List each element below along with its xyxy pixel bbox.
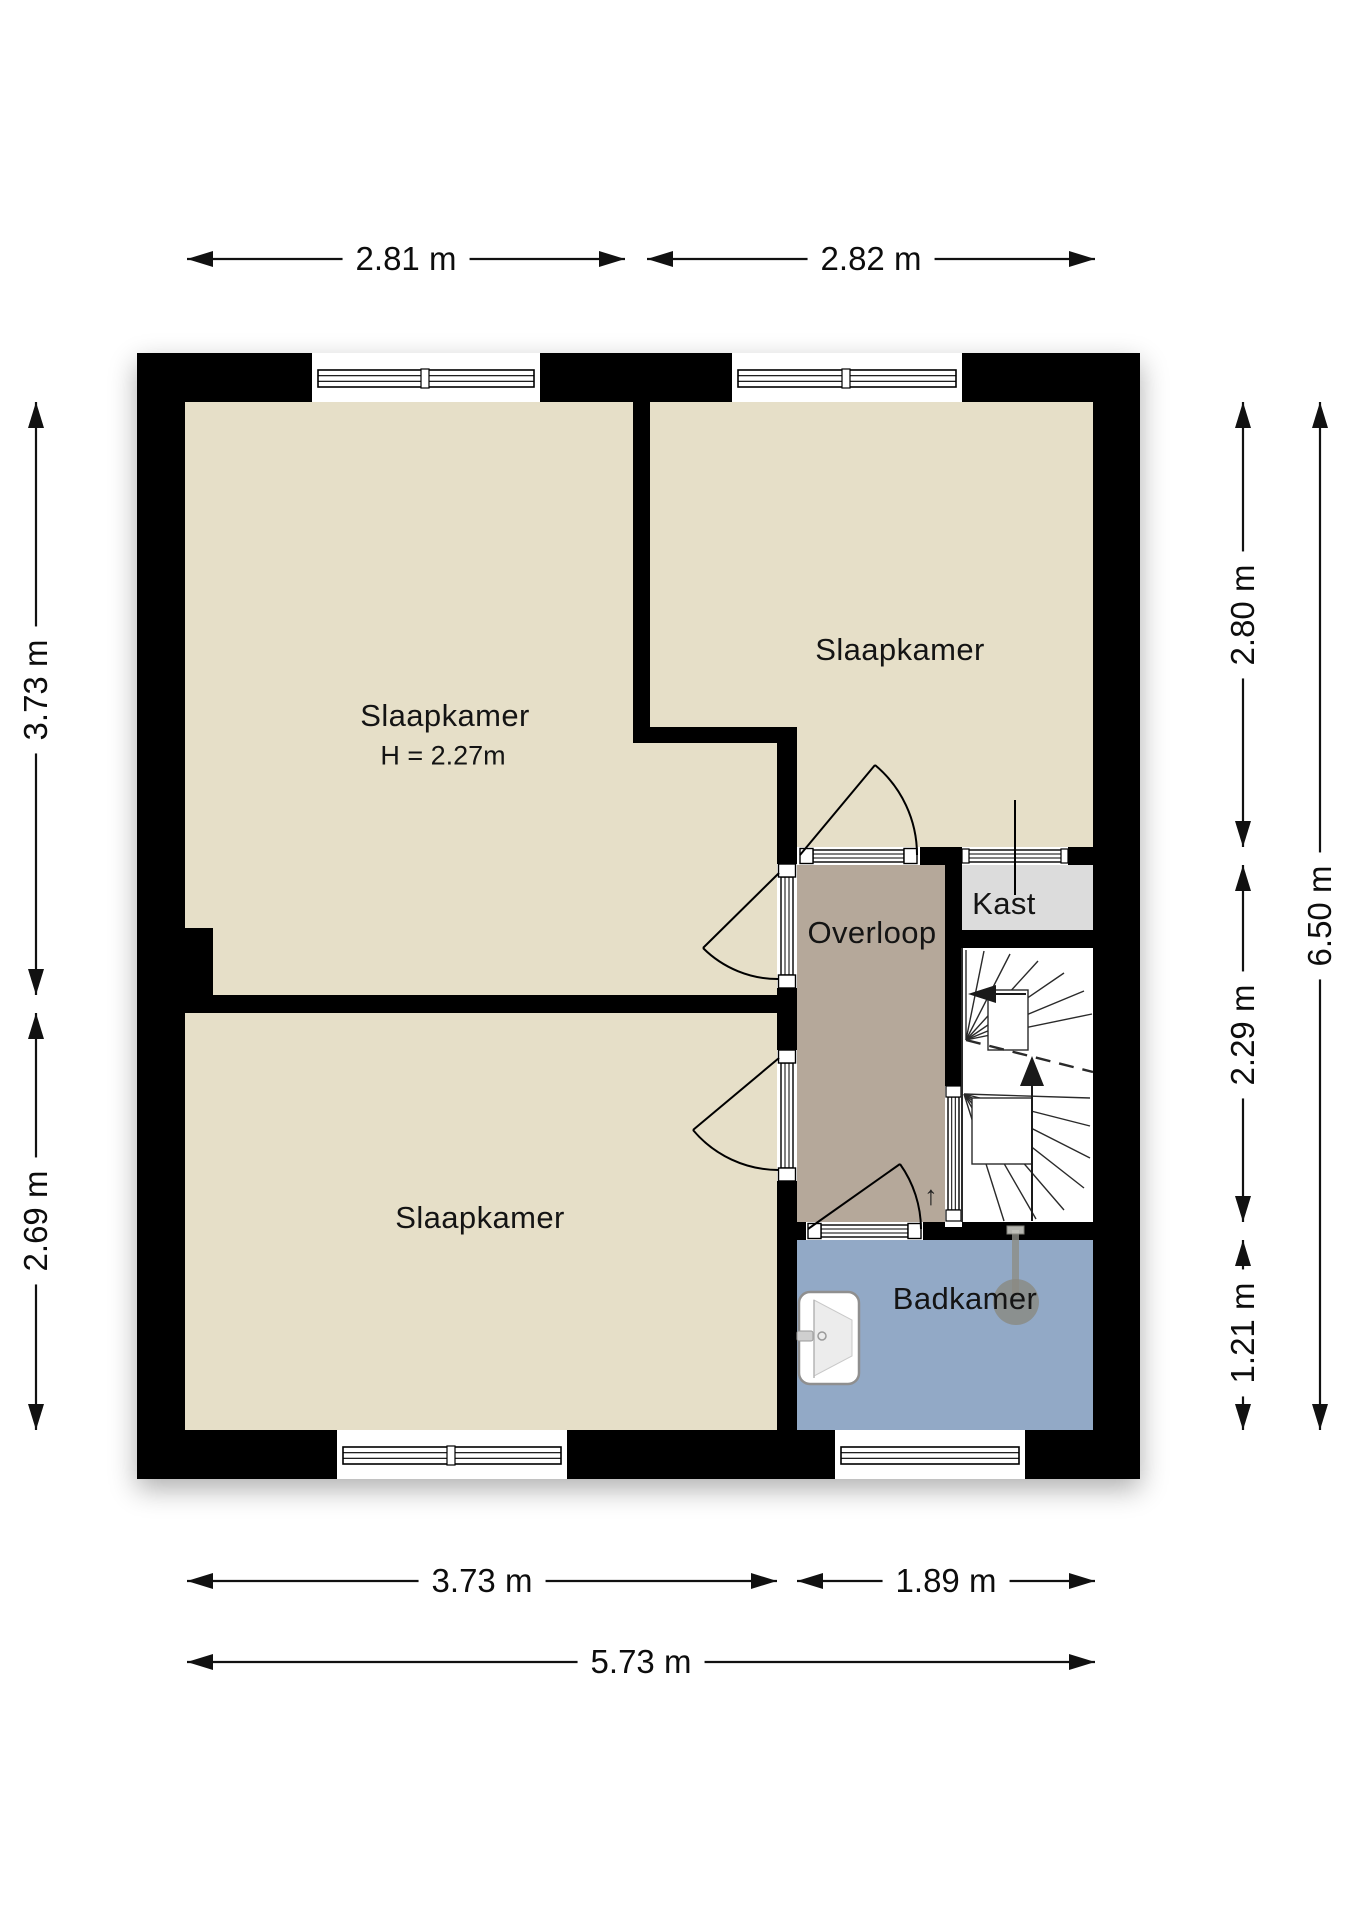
room-label-bedroom-top-left: Slaapkamer bbox=[360, 698, 529, 734]
exterior-wall-right bbox=[1093, 402, 1140, 1430]
dim-label-left-1: 3.73 m bbox=[17, 627, 55, 754]
room-label-landing: Overloop bbox=[808, 915, 937, 951]
dim-label-right-total: 6.50 m bbox=[1301, 853, 1339, 980]
exterior-wall-top bbox=[137, 353, 1140, 402]
floorplan-canvas: Slaapkamer H = 2.27m Slaapkamer Slaapkam… bbox=[0, 0, 1358, 1920]
window-top-left bbox=[312, 353, 540, 402]
room-label-bedroom-bottom-left: Slaapkamer bbox=[395, 1200, 564, 1236]
room-label-bedroom-top-right: Slaapkamer bbox=[815, 632, 984, 668]
room-fill-bedroom-bottom bbox=[185, 847, 777, 1430]
wall-landing-closet-stairs bbox=[945, 865, 962, 1092]
window-bottom-left bbox=[337, 1430, 567, 1479]
dim-label-top-2: 2.82 m bbox=[808, 240, 935, 278]
dim-label-bottom-2: 1.89 m bbox=[883, 1562, 1010, 1600]
dim-label-bottom-total: 5.73 m bbox=[578, 1643, 705, 1681]
window-top-right bbox=[732, 353, 962, 402]
room-label-bathroom: Badkamer bbox=[893, 1281, 1038, 1317]
dim-label-top-1: 2.81 m bbox=[343, 240, 470, 278]
opening-stairs bbox=[945, 1086, 962, 1227]
stairs-lower-flight bbox=[972, 1098, 1032, 1164]
exterior-wall-left bbox=[137, 402, 185, 1430]
dim-label-right-3: 1.21 m bbox=[1224, 1270, 1262, 1397]
dim-label-right-2: 2.29 m bbox=[1224, 972, 1262, 1099]
floorplan-drawing bbox=[0, 0, 1358, 1920]
wall-between-top-bedrooms bbox=[633, 402, 650, 743]
window-bathroom bbox=[835, 1430, 1025, 1479]
room-note-ceiling-height: H = 2.27m bbox=[380, 741, 505, 772]
sink-icon bbox=[797, 1292, 859, 1384]
dim-label-right-1: 2.80 m bbox=[1224, 552, 1262, 679]
dim-label-left-2: 2.69 m bbox=[17, 1158, 55, 1285]
wall-closet-stairs bbox=[945, 930, 1093, 948]
wall-jog bbox=[633, 727, 797, 743]
wall-between-left-bedrooms bbox=[185, 995, 777, 1013]
room-label-closet: Kast bbox=[972, 886, 1036, 922]
stairs-up-marker: ↑ bbox=[924, 1181, 938, 1212]
wall-pier-left bbox=[185, 928, 213, 1013]
dim-label-bottom-1: 3.73 m bbox=[419, 1562, 546, 1600]
